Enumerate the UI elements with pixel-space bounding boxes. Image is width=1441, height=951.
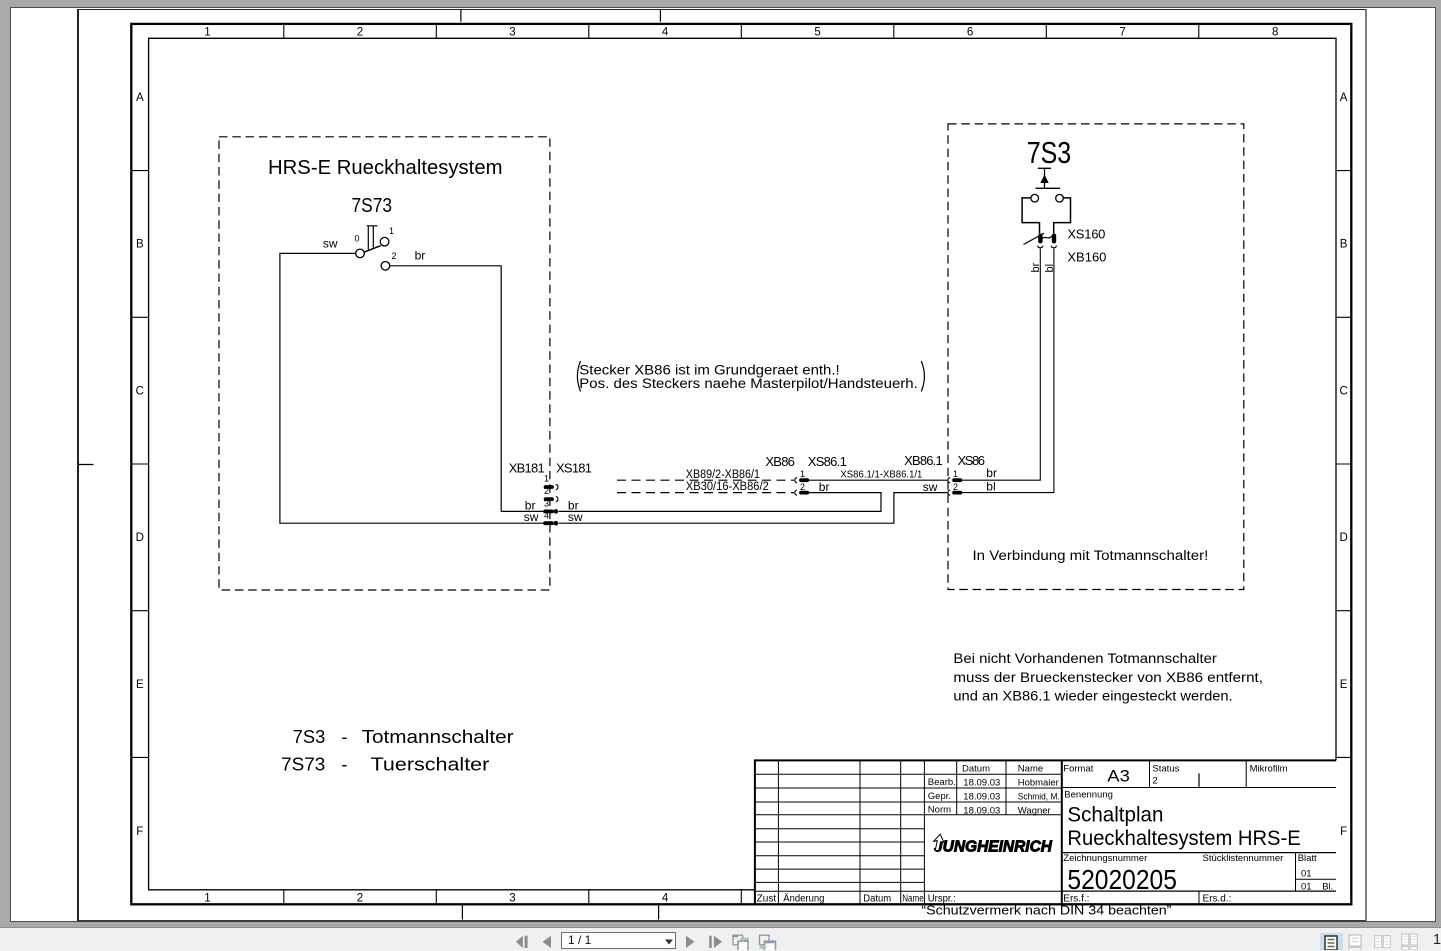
- svg-text:Rueckhaltesystem HRS-E: Rueckhaltesystem HRS-E: [1067, 827, 1300, 850]
- svg-text:Pos. des Steckers naehe Master: Pos. des Steckers naehe Masterpilot/Hand…: [579, 376, 918, 391]
- svg-text:In Verbindung mit Totmannschal: In Verbindung mit Totmannschalter!: [973, 548, 1209, 563]
- svg-text:5: 5: [814, 26, 820, 38]
- svg-text:E: E: [136, 679, 144, 691]
- svg-text:E: E: [1340, 679, 1348, 691]
- svg-text:1: 1: [544, 474, 549, 484]
- svg-text:7S73: 7S73: [281, 754, 325, 774]
- svg-text:4: 4: [544, 511, 549, 521]
- svg-text:Datum: Datum: [863, 893, 891, 904]
- svg-text:2: 2: [1152, 775, 1157, 786]
- svg-text:Tuerschalter: Tuerschalter: [371, 754, 490, 774]
- svg-text:A: A: [1340, 92, 1348, 104]
- svg-text:6: 6: [967, 26, 973, 38]
- svg-text:XS181: XS181: [556, 460, 592, 475]
- svg-text:18.09.03: 18.09.03: [963, 778, 1000, 789]
- svg-text:Schaltplan: Schaltplan: [1067, 804, 1163, 827]
- svg-text:1: 1: [953, 469, 958, 479]
- svg-text:01: 01: [1301, 881, 1312, 892]
- svg-text:2: 2: [544, 486, 549, 496]
- svg-text:18.09.03: 18.09.03: [963, 792, 1000, 803]
- svg-text:1: 1: [800, 469, 805, 479]
- svg-text:B: B: [1340, 239, 1348, 251]
- svg-text:A3: A3: [1107, 767, 1130, 786]
- svg-text:C: C: [136, 385, 144, 397]
- svg-text:7S3: 7S3: [293, 727, 326, 747]
- svg-text:7S3: 7S3: [1027, 135, 1072, 170]
- svg-text:Zust: Zust: [757, 893, 777, 904]
- svg-text:sw: sw: [524, 510, 539, 524]
- svg-text:bl: bl: [986, 480, 995, 494]
- svg-text:bl: bl: [1044, 264, 1056, 273]
- svg-text:br: br: [986, 466, 997, 480]
- svg-text:F: F: [1340, 826, 1347, 838]
- svg-text:A: A: [136, 92, 144, 104]
- svg-text:18.09.03: 18.09.03: [963, 805, 1000, 816]
- svg-text:F: F: [136, 826, 143, 838]
- svg-text:sw: sw: [568, 510, 583, 524]
- svg-text:Datum: Datum: [962, 764, 990, 775]
- svg-text:Änderung: Änderung: [783, 892, 824, 904]
- svg-text:Norm: Norm: [928, 805, 951, 816]
- svg-text:3: 3: [509, 892, 515, 904]
- svg-text:7S73: 7S73: [352, 195, 393, 217]
- svg-text:XB86.1: XB86.1: [904, 453, 943, 468]
- svg-text:sw: sw: [923, 480, 938, 494]
- svg-text:D: D: [1339, 532, 1347, 544]
- svg-text:2: 2: [800, 482, 805, 492]
- svg-text:muss der Brueckenstecker von X: muss der Brueckenstecker von XB86 entfer…: [953, 670, 1263, 685]
- svg-text:Stücklistennummer: Stücklistennummer: [1203, 853, 1284, 864]
- svg-text:und an XB86.1 wieder eingestec: und an XB86.1 wieder eingesteckt werden.: [953, 688, 1232, 703]
- svg-text:Schmid, M.: Schmid, M.: [1018, 792, 1060, 803]
- svg-text:2: 2: [392, 251, 397, 261]
- svg-text:1: 1: [389, 226, 394, 236]
- svg-text:Bl.: Bl.: [1322, 881, 1333, 892]
- svg-text:XB181: XB181: [509, 460, 545, 475]
- svg-text:52020205: 52020205: [1067, 864, 1177, 895]
- svg-text:br: br: [415, 249, 426, 263]
- svg-text:Format: Format: [1063, 764, 1093, 775]
- svg-text:XS86.1: XS86.1: [808, 454, 847, 469]
- svg-text:0: 0: [355, 233, 360, 243]
- svg-text:2: 2: [357, 892, 363, 904]
- svg-text:Ers.d.:: Ers.d.:: [1203, 893, 1232, 904]
- svg-text:3: 3: [544, 498, 549, 508]
- svg-text:XB86: XB86: [765, 454, 795, 469]
- svg-text:7: 7: [1119, 26, 1125, 38]
- svg-text:Benennung: Benennung: [1064, 790, 1113, 801]
- svg-text:XB30/16-XB86/2: XB30/16-XB86/2: [686, 481, 769, 493]
- svg-text:Gepr.: Gepr.: [928, 791, 951, 802]
- svg-text:XS160: XS160: [1067, 226, 1105, 241]
- svg-text:XS86.1/1-XB86.1/1: XS86.1/1-XB86.1/1: [840, 470, 922, 481]
- svg-text:4: 4: [662, 892, 669, 904]
- svg-text:4: 4: [662, 26, 669, 38]
- svg-text:XB160: XB160: [1067, 250, 1106, 265]
- svg-text:Bei nicht Vorhandenen Totmanns: Bei nicht Vorhandenen Totmannschalter: [953, 651, 1217, 666]
- svg-text:Zeichnungsnummer: Zeichnungsnummer: [1063, 853, 1147, 864]
- svg-text:Status: Status: [1152, 764, 1179, 775]
- svg-text:Hobmaier: Hobmaier: [1018, 778, 1059, 789]
- svg-text:2: 2: [357, 26, 363, 38]
- svg-text:br: br: [1030, 262, 1042, 272]
- svg-text:Name: Name: [1018, 764, 1043, 775]
- svg-text:Totmannschalter: Totmannschalter: [362, 727, 514, 747]
- svg-text:“Schutzvermerk nach DIN 34 bea: “Schutzvermerk nach DIN 34 beachten”: [921, 903, 1171, 918]
- svg-text:Bearb.: Bearb.: [928, 777, 956, 788]
- svg-text:XB89/2-XB86/1: XB89/2-XB86/1: [686, 469, 760, 481]
- svg-text:3: 3: [509, 26, 515, 38]
- svg-text:01: 01: [1301, 869, 1312, 880]
- svg-text:-: -: [341, 754, 347, 774]
- svg-text:JUNGHEINRICH: JUNGHEINRICH: [934, 839, 1052, 856]
- svg-text:1: 1: [204, 26, 210, 38]
- svg-text:B: B: [136, 239, 144, 251]
- svg-text:br: br: [819, 480, 830, 494]
- svg-text:Wagner: Wagner: [1018, 805, 1051, 816]
- svg-text:-: -: [341, 727, 347, 747]
- svg-text:2: 2: [953, 482, 958, 492]
- svg-text:Mikrofilm: Mikrofilm: [1250, 764, 1288, 775]
- svg-text:HRS-E Rueckhaltesystem: HRS-E Rueckhaltesystem: [268, 157, 503, 179]
- svg-text:sw: sw: [323, 236, 338, 250]
- svg-text:8: 8: [1272, 26, 1278, 38]
- svg-text:D: D: [136, 532, 144, 544]
- svg-text:1: 1: [204, 892, 210, 904]
- svg-text:Blatt: Blatt: [1298, 853, 1317, 864]
- svg-text:C: C: [1339, 385, 1347, 397]
- svg-text:XS86: XS86: [958, 453, 986, 468]
